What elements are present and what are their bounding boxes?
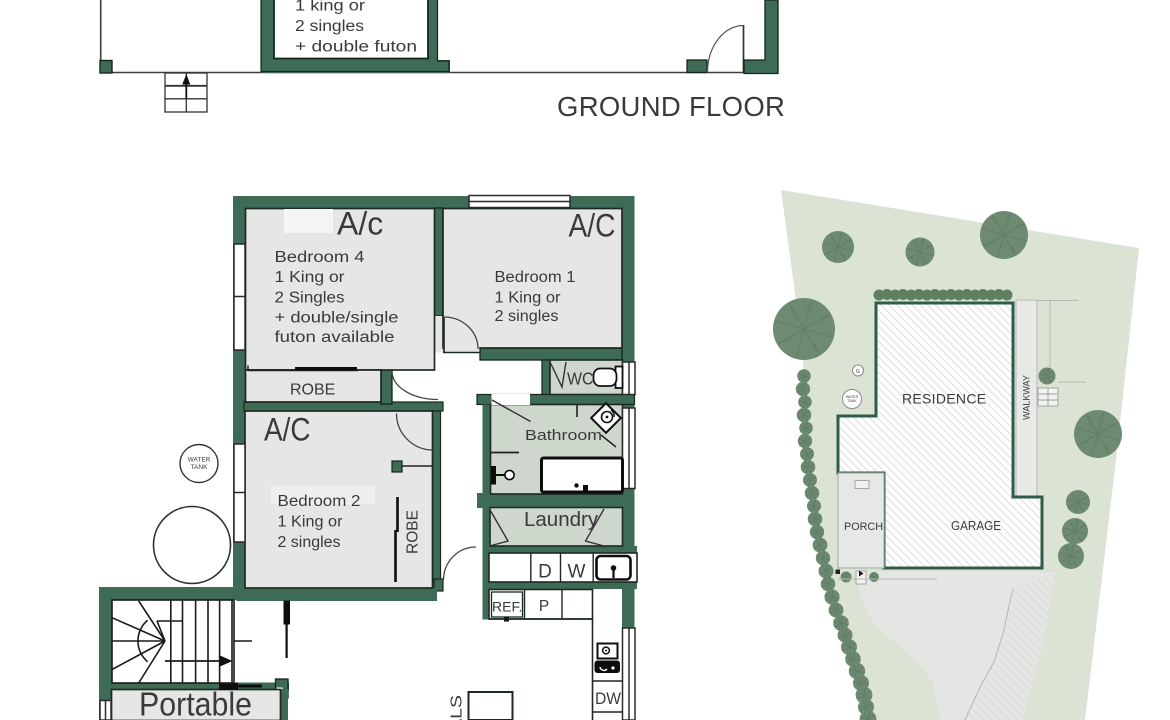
svg-text:Laundry: Laundry — [524, 508, 599, 531]
svg-text:RESIDENCE: RESIDENCE — [902, 391, 986, 407]
svg-text:REF.: REF. — [492, 599, 522, 615]
svg-text:2 singles: 2 singles — [278, 534, 341, 551]
svg-text:G: G — [856, 369, 860, 375]
svg-text:Bedroom 2: Bedroom 2 — [278, 493, 361, 510]
svg-text:ROBE: ROBE — [405, 510, 422, 554]
svg-text:GROUND FLOOR: GROUND FLOOR — [557, 91, 785, 122]
svg-text:+ double futon: + double futon — [295, 39, 417, 56]
svg-text:2 Singles: 2 Singles — [275, 289, 345, 306]
svg-text:WATER: WATER — [188, 457, 211, 464]
svg-text:DW: DW — [595, 689, 621, 708]
svg-text:1 King or: 1 King or — [495, 289, 561, 306]
svg-text:1 King or: 1 King or — [278, 514, 343, 531]
svg-text:1 king or: 1 king or — [295, 0, 365, 15]
svg-text:2 singles: 2 singles — [495, 308, 559, 325]
svg-text:+ double/single: + double/single — [275, 310, 399, 327]
svg-text:W: W — [568, 562, 586, 583]
svg-text:P: P — [539, 598, 549, 615]
svg-text:1 King or: 1 King or — [275, 269, 345, 286]
svg-text:A/C: A/C — [569, 208, 616, 244]
svg-text:WALKWAY: WALKWAY — [1022, 375, 1032, 420]
svg-text:futon available: futon available — [275, 329, 395, 346]
svg-text:A/C: A/C — [264, 412, 311, 448]
svg-text:Bedroom 4: Bedroom 4 — [275, 249, 365, 266]
svg-text:TANK: TANK — [191, 464, 209, 471]
svg-text:A/c: A/c — [337, 206, 383, 242]
svg-text:Bedroom 1: Bedroom 1 — [495, 269, 576, 286]
svg-text:WC: WC — [567, 369, 594, 389]
svg-text:2 singles: 2 singles — [295, 18, 364, 35]
svg-text:PORCH: PORCH — [844, 521, 883, 533]
svg-text:Portable: Portable — [139, 686, 252, 720]
svg-text:D: D — [538, 562, 552, 583]
svg-text:GARAGE: GARAGE — [951, 518, 1001, 533]
svg-text:TANK: TANK — [847, 399, 857, 403]
svg-text:Bathroom: Bathroom — [525, 427, 602, 444]
svg-text:MEALS: MEALS — [449, 695, 466, 720]
svg-text:ROBE: ROBE — [290, 382, 335, 399]
